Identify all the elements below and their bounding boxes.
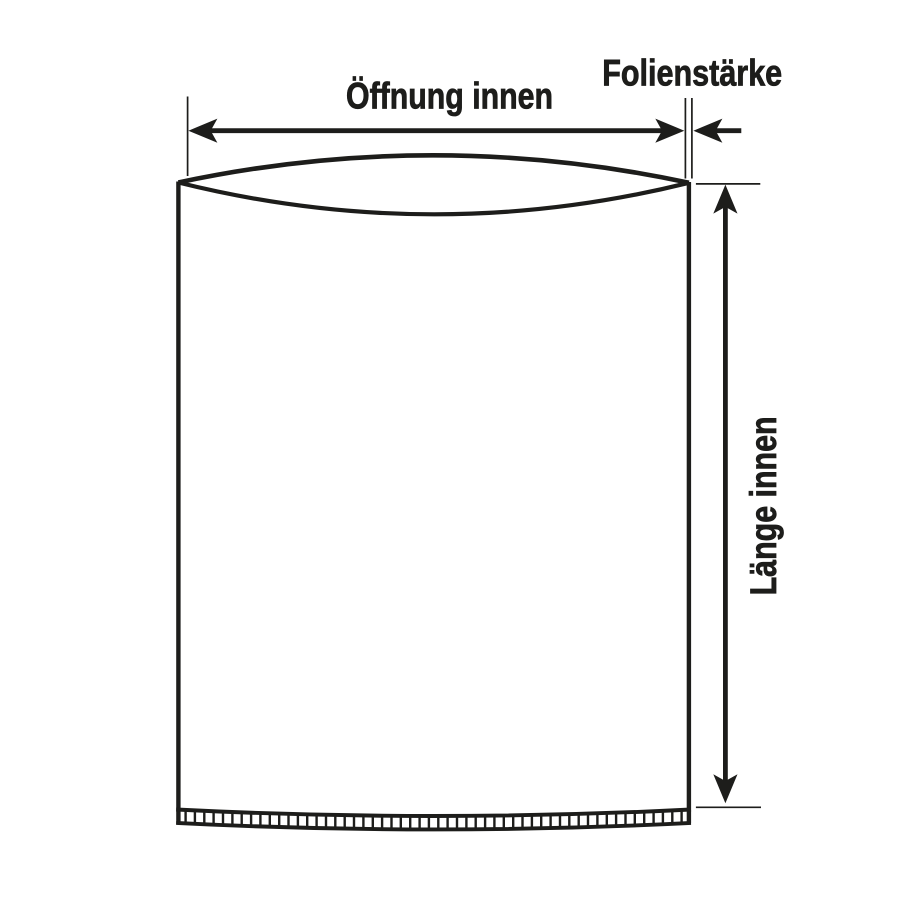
- svg-text:Folienstärke: Folienstärke: [602, 53, 782, 94]
- svg-text:Öffnung innen: Öffnung innen: [346, 76, 553, 117]
- svg-text:Länge innen: Länge innen: [743, 416, 784, 595]
